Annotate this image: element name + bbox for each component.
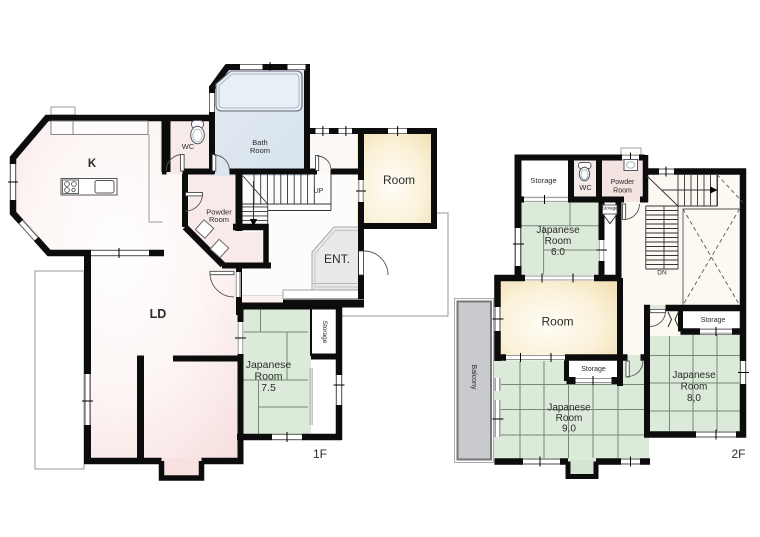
svg-text:Storage: Storage [701, 317, 726, 324]
svg-text:Room: Room [681, 382, 708, 393]
svg-text:Balcony: Balcony [470, 365, 477, 390]
svg-text:6.0: 6.0 [551, 247, 565, 258]
svg-text:K: K [88, 158, 97, 170]
svg-text:Room: Room [254, 371, 282, 383]
svg-text:ENT.: ENT. [324, 252, 350, 266]
svg-text:Room: Room [613, 188, 632, 195]
svg-text:Japanese: Japanese [547, 403, 591, 414]
svg-text:Storage: Storage [321, 321, 328, 344]
svg-text:Powder: Powder [611, 179, 635, 186]
svg-text:Room: Room [556, 413, 583, 424]
svg-text:Japanese: Japanese [536, 225, 580, 236]
svg-text:1F: 1F [313, 447, 327, 461]
svg-text:Japanese: Japanese [246, 359, 292, 371]
svg-text:Room: Room [541, 315, 573, 329]
svg-text:Room: Room [383, 173, 415, 187]
svg-text:Room: Room [545, 236, 572, 247]
svg-text:WC: WC [579, 183, 592, 192]
svg-text:9.0: 9.0 [562, 424, 576, 435]
svg-text:DN: DN [657, 270, 667, 277]
svg-text:Storage: Storage [602, 206, 618, 211]
svg-text:UP: UP [314, 188, 324, 195]
svg-text:Japanese: Japanese [672, 370, 716, 381]
svg-text:7.5: 7.5 [261, 382, 276, 394]
svg-text:Storage: Storage [530, 176, 556, 185]
svg-text:LD: LD [150, 307, 167, 321]
svg-text:WC: WC [182, 142, 195, 151]
svg-text:Storage: Storage [581, 366, 606, 373]
svg-text:Room: Room [250, 146, 270, 155]
svg-text:2F: 2F [731, 447, 745, 461]
svg-text:Room: Room [209, 215, 229, 224]
svg-text:8,0: 8,0 [687, 393, 701, 404]
